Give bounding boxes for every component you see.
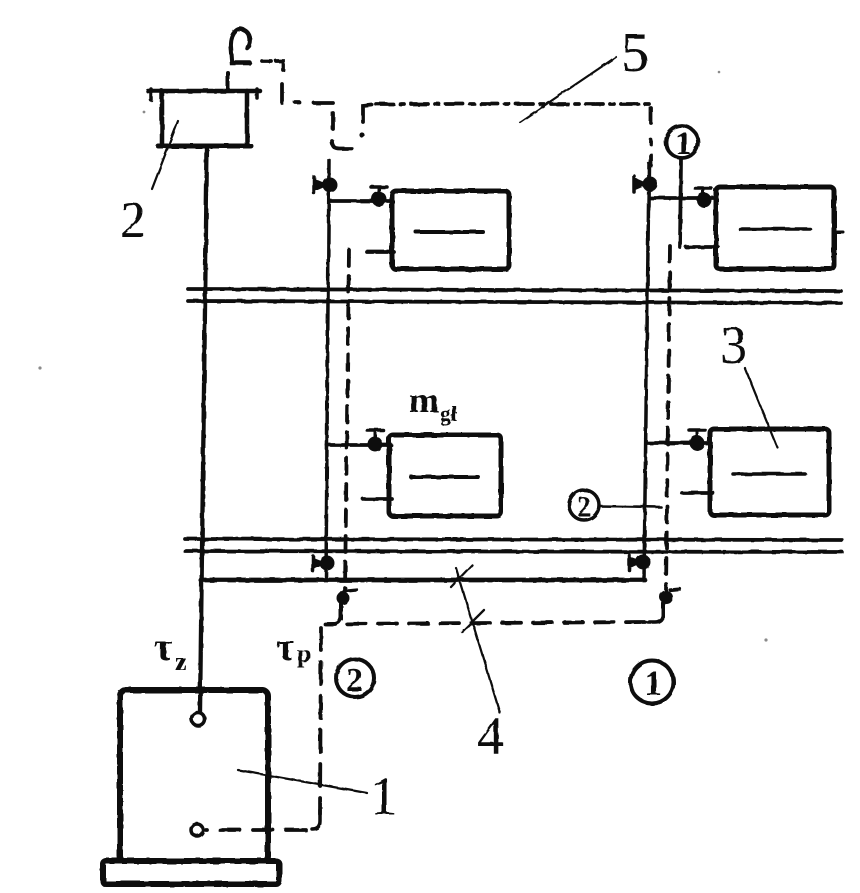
- svg-text:2: 2: [577, 492, 591, 523]
- svg-text:1: 1: [644, 663, 662, 703]
- svg-text:5: 5: [621, 22, 649, 84]
- svg-text:τ: τ: [154, 624, 172, 669]
- svg-text:z: z: [175, 647, 187, 676]
- svg-text:p: p: [297, 639, 311, 668]
- svg-text:m: m: [409, 380, 439, 420]
- svg-text:2: 2: [346, 662, 363, 699]
- svg-text:τ: τ: [276, 624, 294, 669]
- svg-text:gł: gł: [440, 401, 457, 426]
- svg-text:1: 1: [675, 126, 692, 162]
- svg-text:2: 2: [120, 192, 146, 249]
- svg-text:3: 3: [720, 315, 747, 375]
- svg-text:4: 4: [477, 706, 504, 766]
- svg-text:1: 1: [370, 766, 397, 826]
